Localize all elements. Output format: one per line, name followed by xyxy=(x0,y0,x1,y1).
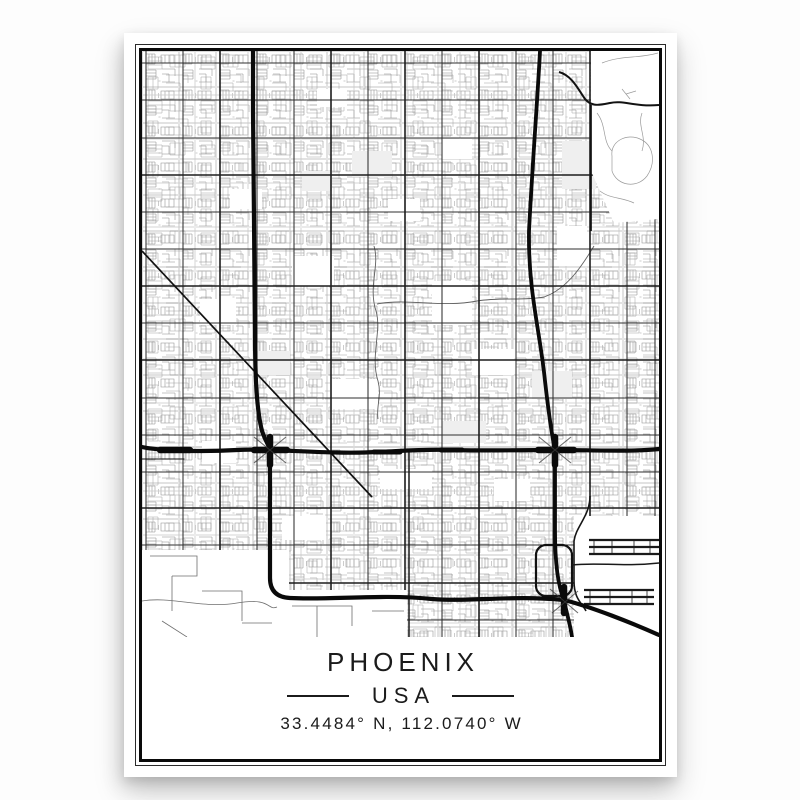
country-row: USA xyxy=(287,684,514,707)
poster-inner-frame: PHOENIX USA 33.4484° N, 112.0740° W xyxy=(139,48,662,762)
map-poster: PHOENIX USA 33.4484° N, 112.0740° W xyxy=(124,33,677,777)
street-map-svg xyxy=(142,51,659,637)
poster-caption: PHOENIX USA 33.4484° N, 112.0740° W xyxy=(142,637,659,759)
country-label: USA xyxy=(366,684,435,707)
right-dash-rule xyxy=(452,695,514,697)
left-dash-rule xyxy=(287,695,349,697)
city-title: PHOENIX xyxy=(322,649,479,676)
page-background: PHOENIX USA 33.4484° N, 112.0740° W xyxy=(0,0,800,800)
street-map-graphic xyxy=(142,51,659,637)
coordinates-label: 33.4484° N, 112.0740° W xyxy=(278,715,523,734)
